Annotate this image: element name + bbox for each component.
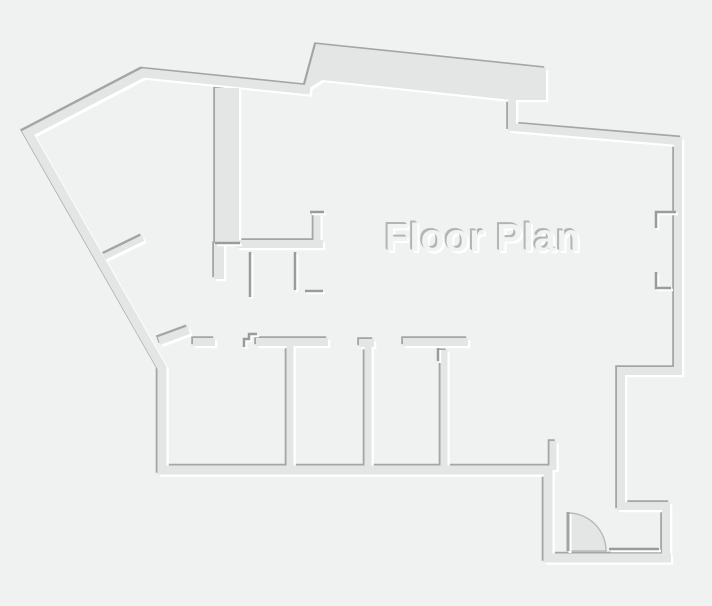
room-top-diagonal xyxy=(159,330,189,341)
right-outline xyxy=(514,102,680,559)
walls-layer xyxy=(28,44,678,558)
floor-plan-title: Floor Plan xyxy=(385,219,581,258)
right-outline xyxy=(512,100,678,557)
floor-plan-svg xyxy=(0,0,712,606)
right-outline xyxy=(510,98,676,555)
door-swing-arc xyxy=(568,513,606,551)
floor-plan-canvas: Floor Plan xyxy=(0,0,712,606)
door-symbol xyxy=(568,512,606,553)
